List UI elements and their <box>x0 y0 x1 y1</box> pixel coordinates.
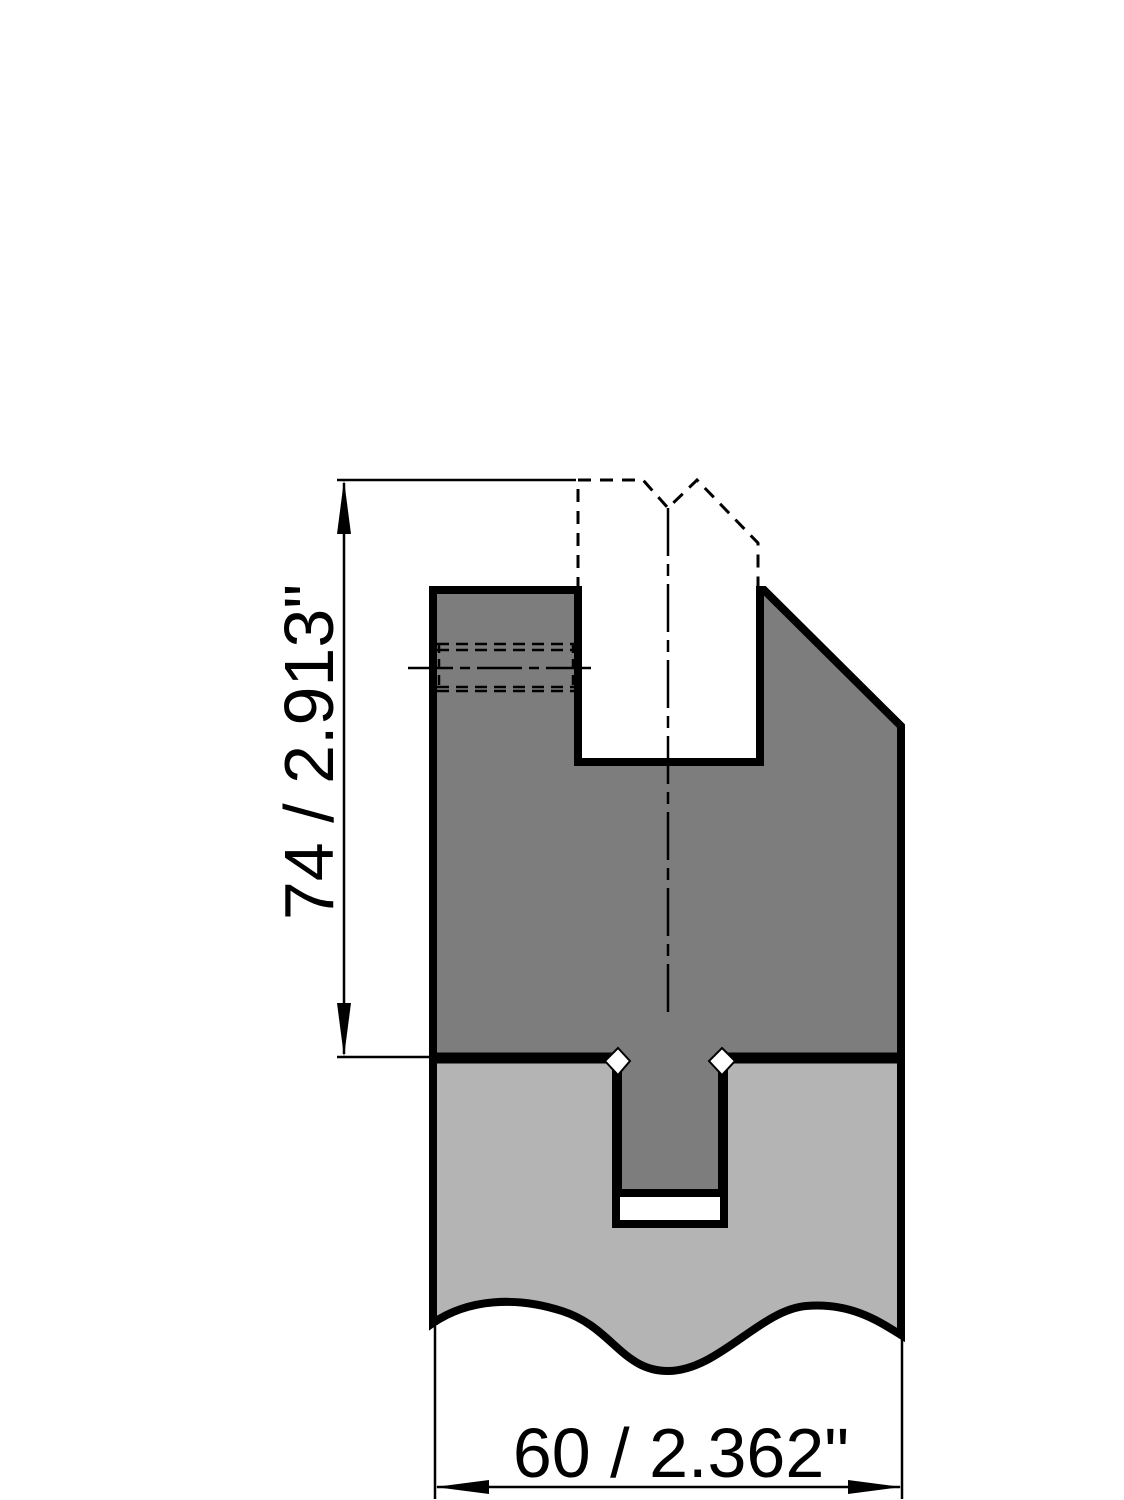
height-arrow-down <box>337 1003 351 1057</box>
width-dimension: 60 / 2.362" <box>435 1414 902 1494</box>
width-arrow-left <box>435 1480 489 1494</box>
height-arrow-up <box>337 480 351 534</box>
height-dimension-label: 74 / 2.913" <box>270 584 348 920</box>
width-arrow-right <box>848 1480 902 1494</box>
width-dimension-label: 60 / 2.362" <box>513 1414 849 1492</box>
die-adapter-section-drawing: 74 / 2.913" 60 / 2.362" <box>0 0 1124 1500</box>
height-dimension: 74 / 2.913" <box>270 480 351 1057</box>
technical-drawing-canvas: 74 / 2.913" 60 / 2.362" <box>0 0 1124 1500</box>
